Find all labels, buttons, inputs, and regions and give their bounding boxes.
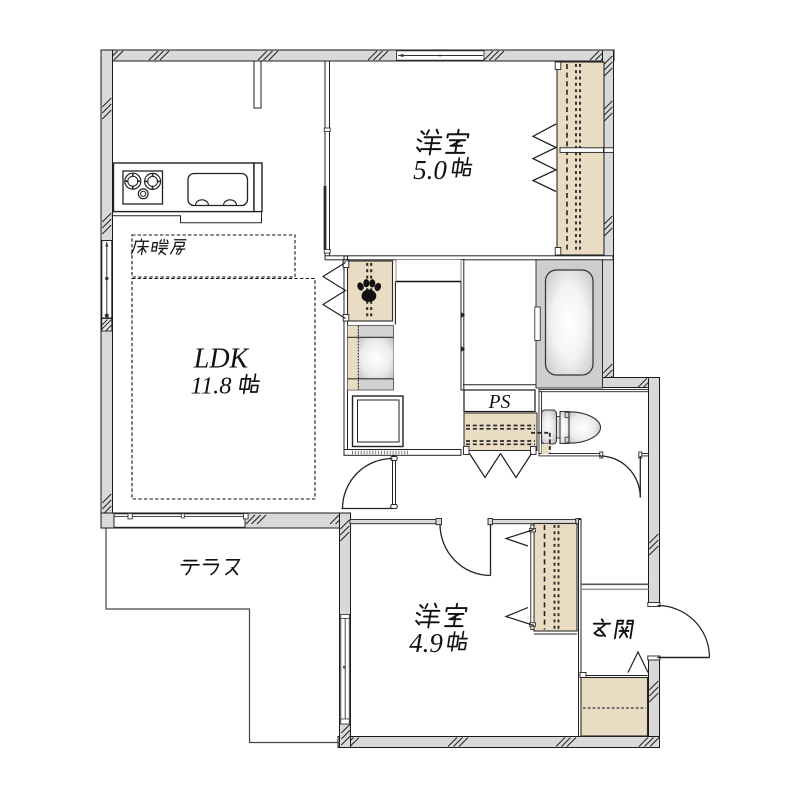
svg-text:11.8: 11.8 (190, 373, 231, 400)
svg-text:LDK: LDK (193, 344, 250, 375)
svg-text:PS: PS (488, 392, 511, 413)
svg-text:5.0: 5.0 (413, 155, 447, 185)
svg-text:4.9: 4.9 (409, 628, 443, 658)
